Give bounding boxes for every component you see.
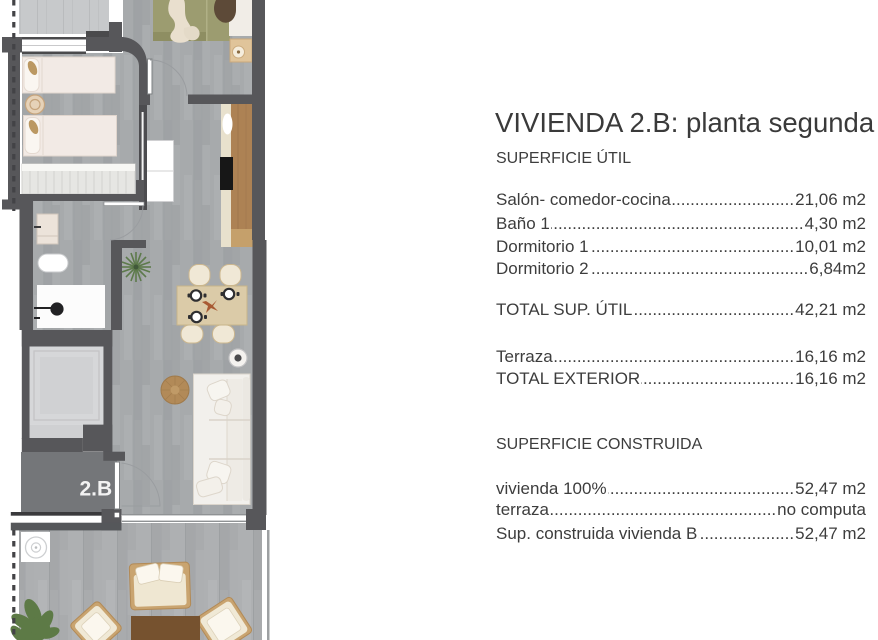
- svg-text:2.B: 2.B: [80, 478, 113, 501]
